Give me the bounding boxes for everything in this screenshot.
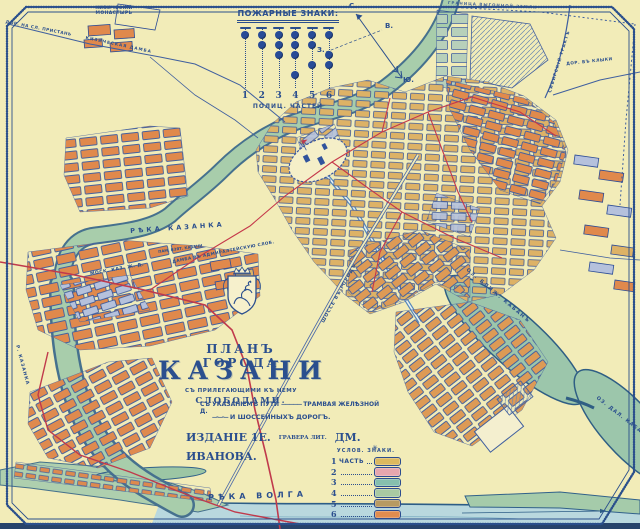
legend-row: 5 bbox=[331, 498, 401, 509]
fire-sign-column: 2 bbox=[256, 27, 268, 101]
label-kizichesky-monastery: КИЗИЧЕСКІЙ МОНАСТЫРЬ bbox=[88, 7, 140, 17]
legend-color-swatch bbox=[374, 488, 401, 498]
fire-sign-number: 3 bbox=[275, 91, 281, 101]
legend-color-swatch bbox=[374, 467, 401, 477]
kazan-city-plan-map: ПОЖАРНЫЕ ЗНАКИ: 123456 ПОЛИЦ. ЧАСТЕЙ С. … bbox=[0, 0, 640, 529]
legend-color-swatch bbox=[374, 457, 401, 467]
engraver-label: ГРАВЕРА ЛИТ. bbox=[279, 435, 327, 441]
fire-sign-number: 6 bbox=[326, 91, 332, 101]
compass-north-label: С. bbox=[349, 2, 357, 10]
edition-label: ИЗДАНІЕ 1Е. bbox=[186, 431, 271, 444]
tram-line-symbol: ————— bbox=[281, 402, 301, 408]
highway-line-symbol: —··—··— bbox=[212, 415, 228, 421]
fire-signs-columns: 123456 bbox=[239, 27, 335, 101]
fire-sign-number: 5 bbox=[309, 91, 315, 101]
fire-signs-subtitle: ПОЛИЦ. ЧАСТЕЙ bbox=[237, 103, 339, 110]
fire-sign-number: 2 bbox=[259, 91, 265, 101]
compass-east-label: В. bbox=[385, 22, 393, 30]
map-subtitle-4: —··—··— И ШОССЕЙНЫХЪ ДОРОГЪ. bbox=[212, 413, 382, 421]
district-legend: УСЛОВ. ЗНАКИ. 1ЧАСТЬ23456 bbox=[331, 448, 401, 520]
fire-sign-number: 4 bbox=[292, 91, 298, 101]
legend-color-swatch bbox=[374, 510, 401, 520]
legend-color-swatch bbox=[374, 499, 401, 509]
fire-sign-column: 4 bbox=[289, 27, 301, 101]
fire-sign-column: 5 bbox=[306, 27, 318, 101]
legend-row: 6 bbox=[331, 509, 401, 520]
fire-sign-column: 1 bbox=[239, 27, 251, 101]
map-subtitle-1: СЪ ПРИЛЕГАЮЩИМИ КЪ НЕМУ bbox=[168, 388, 314, 394]
map-title-city: КАЗАНИ bbox=[158, 356, 324, 385]
district-legend-title: УСЛОВ. ЗНАКИ. bbox=[331, 448, 401, 454]
compass-south-label: Ю. bbox=[403, 76, 414, 84]
legend-row: 3 bbox=[331, 477, 401, 488]
highway-text: И ШОССЕЙНЫХЪ ДОРОГЪ. bbox=[230, 413, 331, 421]
fire-signs-title: ПОЖАРНЫЕ ЗНАКИ: bbox=[237, 9, 339, 23]
legend-row: 2 bbox=[331, 467, 401, 478]
legend-row: 4 bbox=[331, 488, 401, 499]
fire-sign-number: 1 bbox=[242, 91, 248, 101]
subtitle-3-text: СЪ УКАЗАНІЕМЪ ПУТИ bbox=[200, 401, 279, 408]
legend-row: 1ЧАСТЬ bbox=[331, 456, 401, 467]
fire-sign-column: 6 bbox=[323, 27, 335, 101]
legend-rows: 1ЧАСТЬ23456 bbox=[331, 456, 401, 520]
legend-color-swatch bbox=[374, 478, 401, 488]
fire-sign-column: 3 bbox=[273, 27, 285, 101]
